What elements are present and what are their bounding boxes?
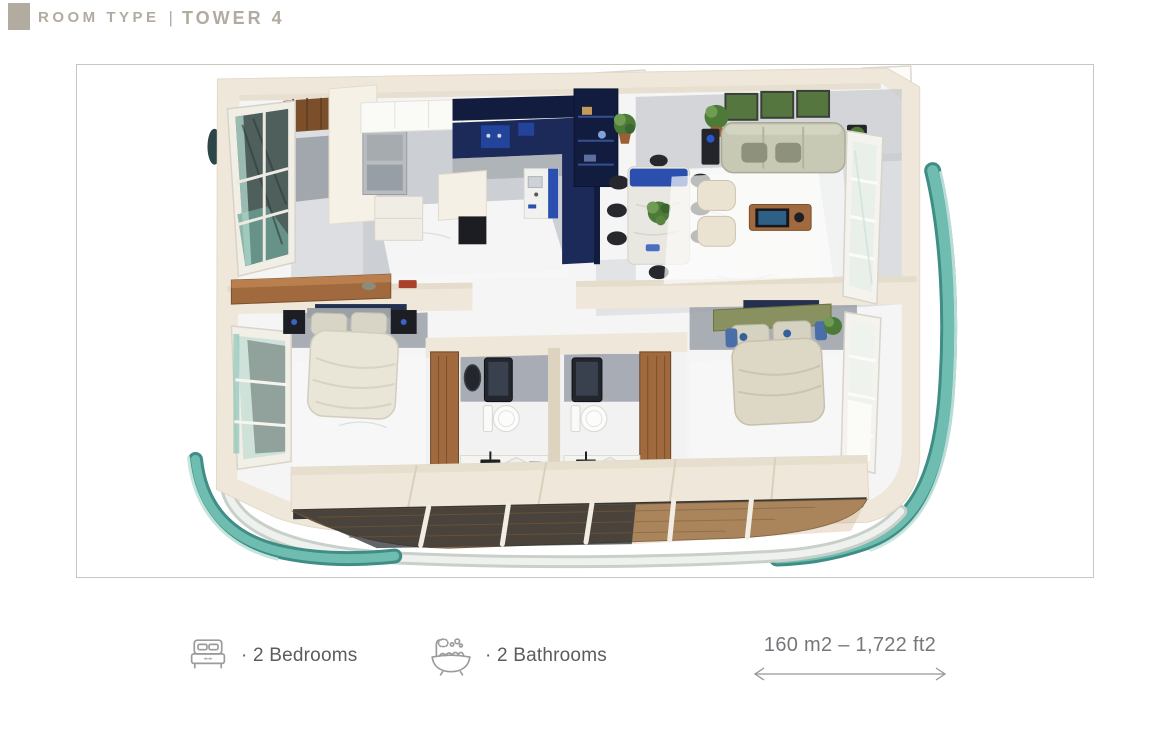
page-header: ROOM TYPE | TOWER 4 — [0, 0, 1162, 36]
page-title-main: ROOM TYPE — [38, 4, 160, 32]
window-bedroom-1 — [231, 326, 291, 469]
feature-bedrooms: · 2 Bedrooms — [186, 637, 357, 675]
balcony-deck — [291, 455, 869, 548]
page-title: ROOM TYPE | TOWER 4 — [38, 0, 285, 32]
floorplan-frame — [76, 64, 1094, 578]
area-text: 160 m2 – 1,722 ft2 — [746, 634, 954, 657]
bathtub-icon — [428, 635, 474, 677]
accent-square — [8, 3, 30, 30]
bathrooms-label: · 2 Bathrooms — [485, 645, 607, 667]
feature-bathrooms: · 2 Bathrooms — [428, 635, 607, 677]
page-title-separator: | — [169, 4, 173, 32]
bedrooms-label: · 2 Bedrooms — [241, 645, 357, 667]
area-group: 160 m2 – 1,722 ft2 — [746, 634, 954, 683]
page-title-subtitle: TOWER 4 — [182, 4, 285, 32]
double-arrow-icon — [750, 665, 950, 683]
bathrooms — [426, 332, 688, 481]
floorplan-image — [77, 65, 1093, 577]
bed-icon — [186, 637, 230, 675]
